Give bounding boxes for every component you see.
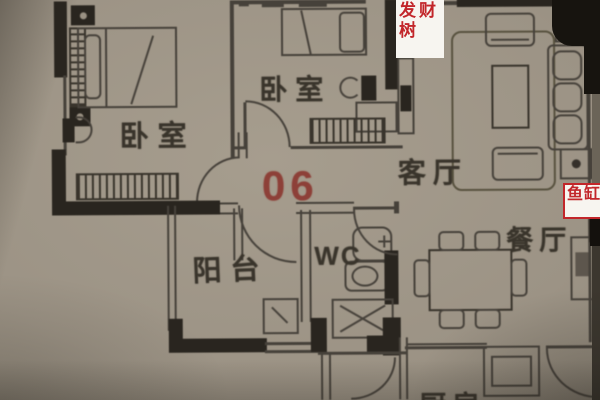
pillow-icon [84, 34, 101, 99]
room-label-wc: WC [314, 241, 362, 272]
chair-icon [474, 231, 500, 251]
wall-line [405, 346, 487, 350]
chair-icon [439, 309, 465, 329]
wall [311, 318, 327, 352]
photo-dark-edge [584, 36, 600, 94]
photo-dark-edge [592, 94, 600, 190]
wall [52, 149, 66, 205]
room-label-bedroom-top: 卧室 [259, 68, 331, 108]
chair-icon [475, 309, 501, 329]
wall-line [318, 351, 406, 355]
bedside-lamp-icon [339, 77, 361, 99]
door-leaf [238, 132, 248, 158]
chair-icon [438, 231, 464, 251]
room-label-dining: 餐厅 [506, 218, 572, 257]
coffee-table-icon [491, 65, 529, 129]
wall-double-line [321, 355, 331, 400]
cut-off-print-fragment [262, 0, 284, 7]
armchair-icon [485, 13, 535, 47]
kitchen-sink-icon [491, 356, 532, 387]
photo-dark-edge [592, 246, 600, 400]
annotation-fish-tank: 鱼缸 [563, 183, 600, 219]
dining-table-icon [428, 249, 512, 312]
wardrobe-hatch [309, 117, 385, 143]
balcony-window [167, 206, 177, 331]
room-label-bedroom-left: 卧室 [119, 113, 195, 155]
wall [177, 338, 267, 353]
wall-double-line [300, 210, 312, 322]
door-arc [351, 357, 396, 399]
sofa-cushion [552, 82, 582, 112]
door-arc [196, 156, 240, 202]
room-label-living: 客厅 [398, 151, 468, 191]
nightstand-icon [62, 118, 74, 142]
wall [457, 0, 557, 7]
cut-off-print-fragment [299, 0, 327, 7]
wall [52, 200, 220, 215]
room-label-kitchen: 厨房 [419, 384, 485, 400]
wall-line [63, 75, 66, 155]
wardrobe-hatch [76, 173, 179, 201]
sofa-cushion [552, 114, 582, 144]
annotation-money-tree: 发财树 [396, 0, 444, 58]
armchair-line [498, 153, 538, 155]
column-post [71, 5, 95, 25]
tv-icon [400, 85, 411, 111]
wall-line [230, 0, 235, 158]
wall [384, 250, 398, 304]
sofa-cushion [552, 50, 582, 80]
floor-plan-photo: 卧室 卧室 客厅 [0, 0, 600, 400]
room-label-balcony: 阳台 [192, 245, 270, 290]
wall [54, 1, 67, 77]
chair-icon [413, 259, 430, 297]
cut-off-print-fragment [239, 0, 249, 6]
floor-plan-drawing: 卧室 卧室 客厅 [0, 0, 600, 400]
chair-icon [510, 259, 527, 297]
nightstand-icon [361, 76, 376, 101]
pillow-icon [339, 12, 365, 53]
armchair-line [491, 39, 529, 41]
wall-line [291, 145, 403, 149]
